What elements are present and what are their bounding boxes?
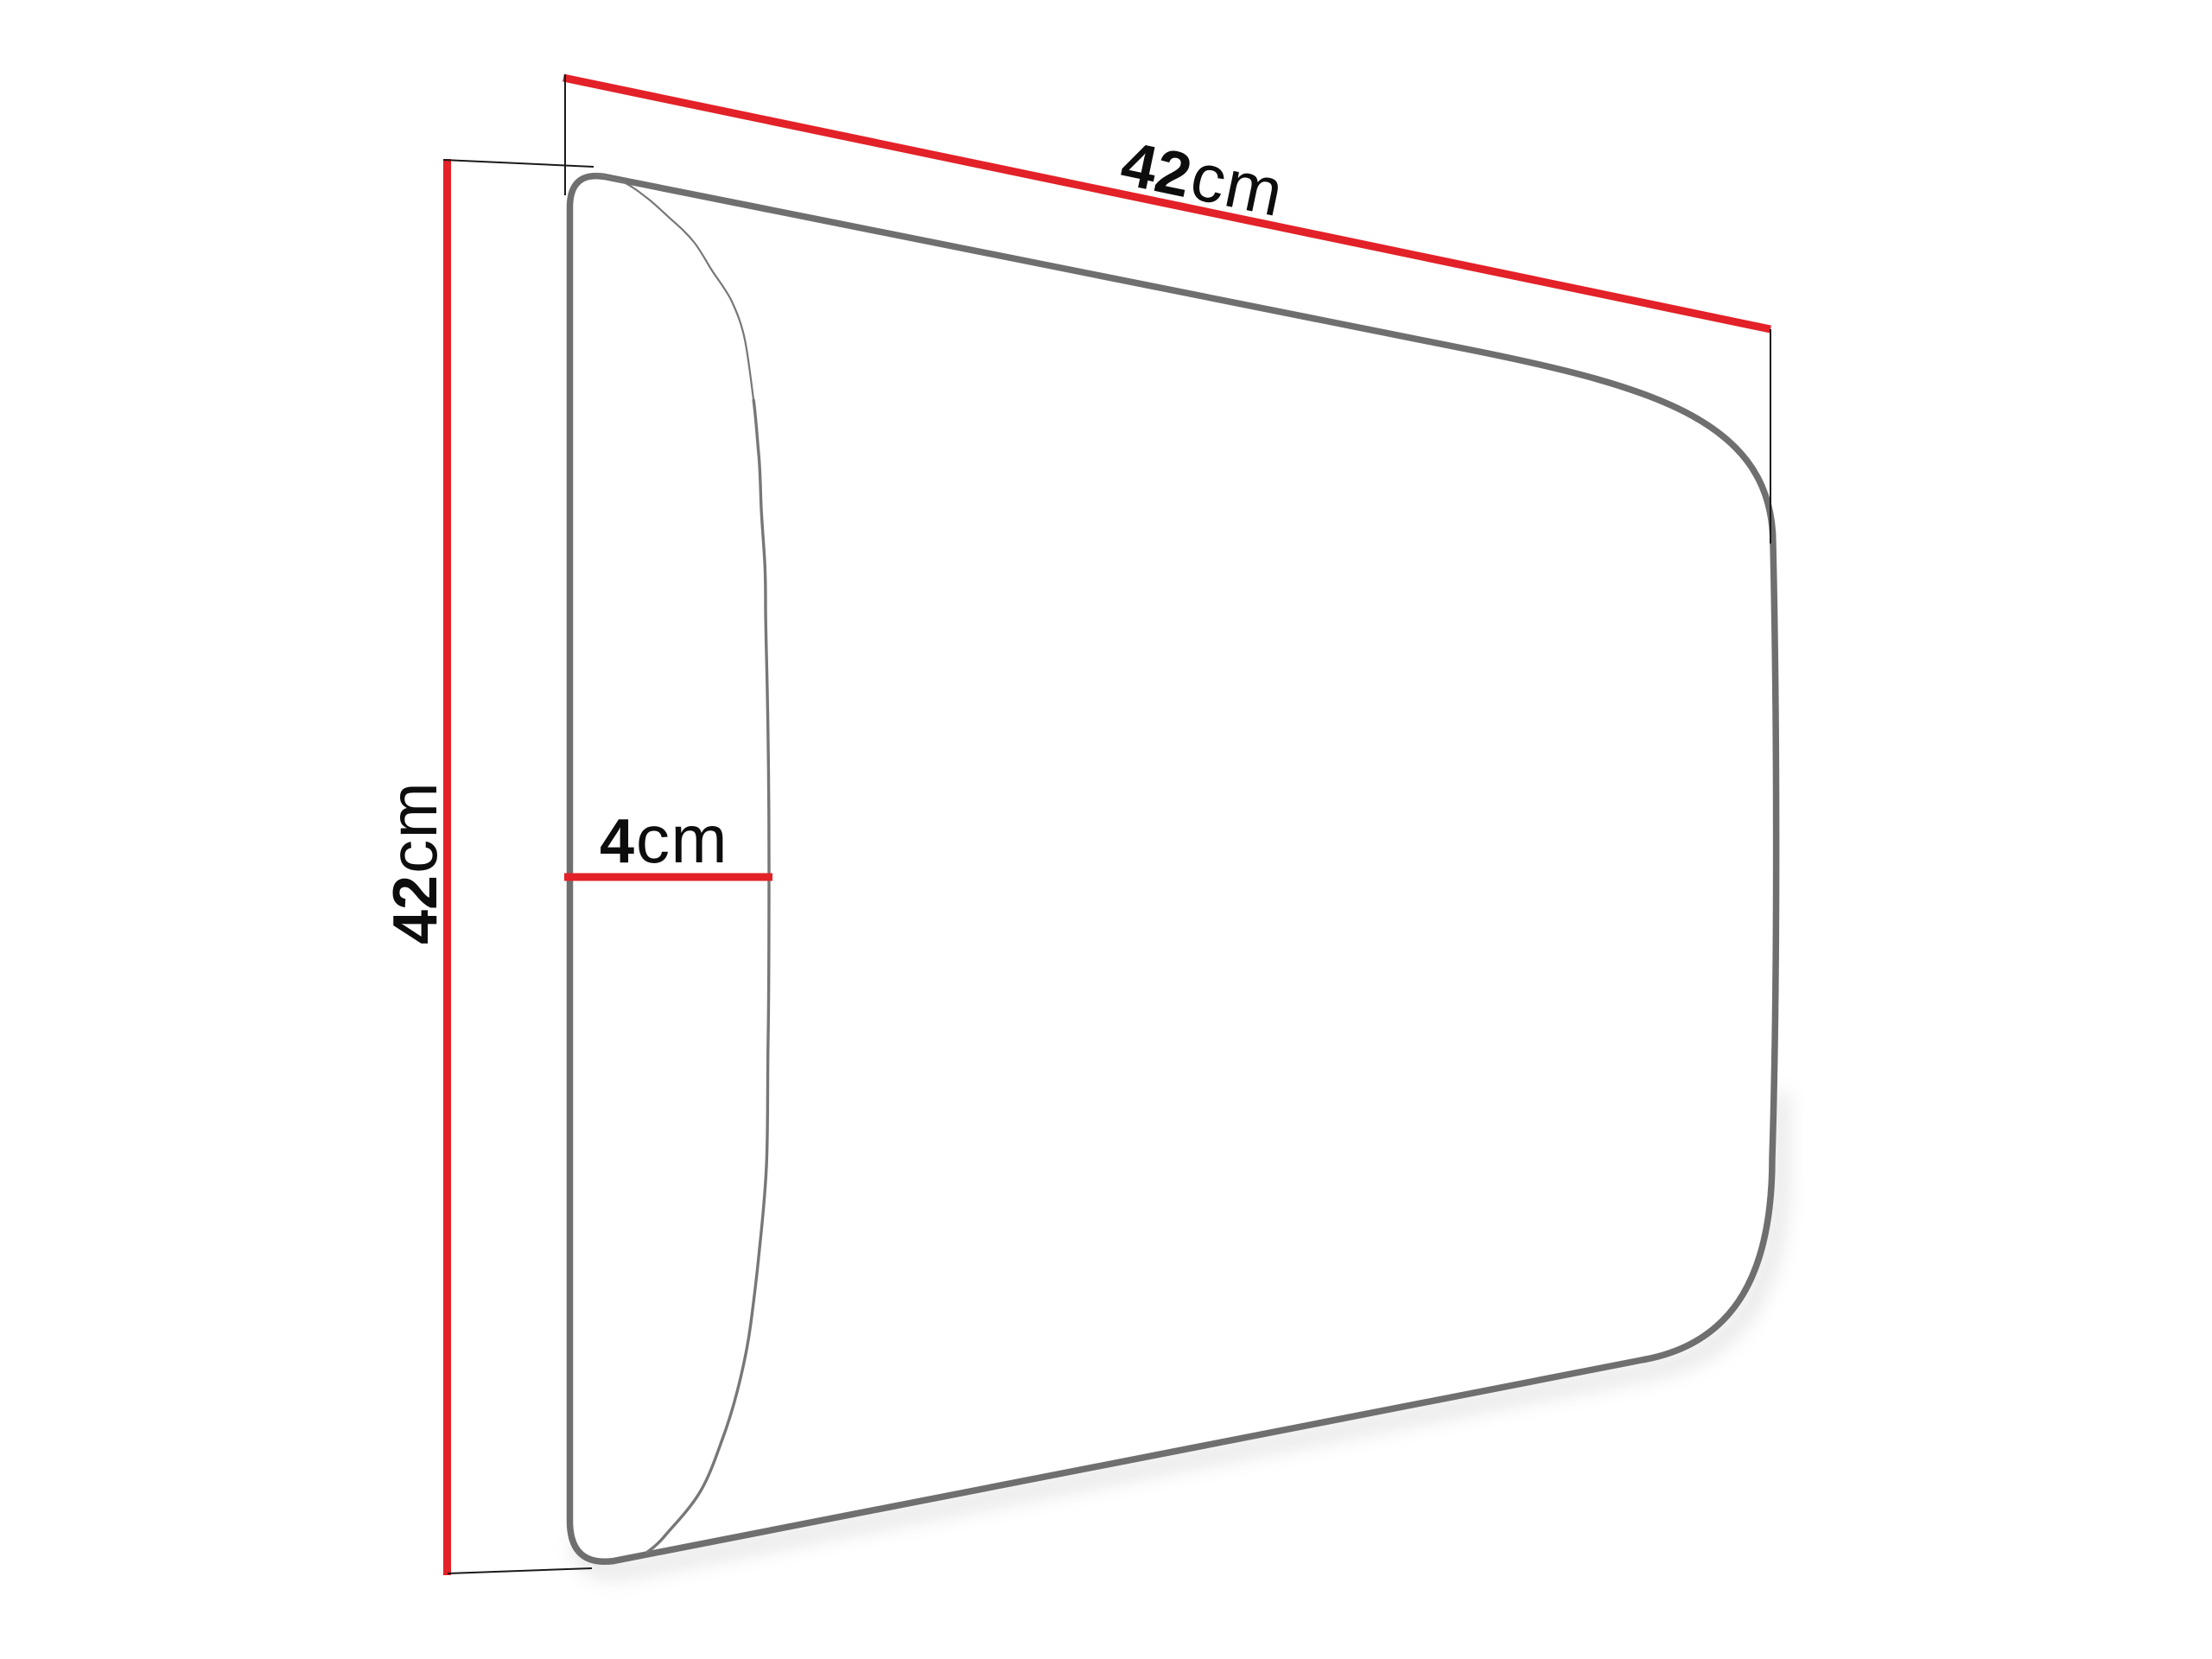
svg-text:42cm: 42cm <box>375 781 451 944</box>
svg-text:4cm: 4cm <box>600 801 728 877</box>
